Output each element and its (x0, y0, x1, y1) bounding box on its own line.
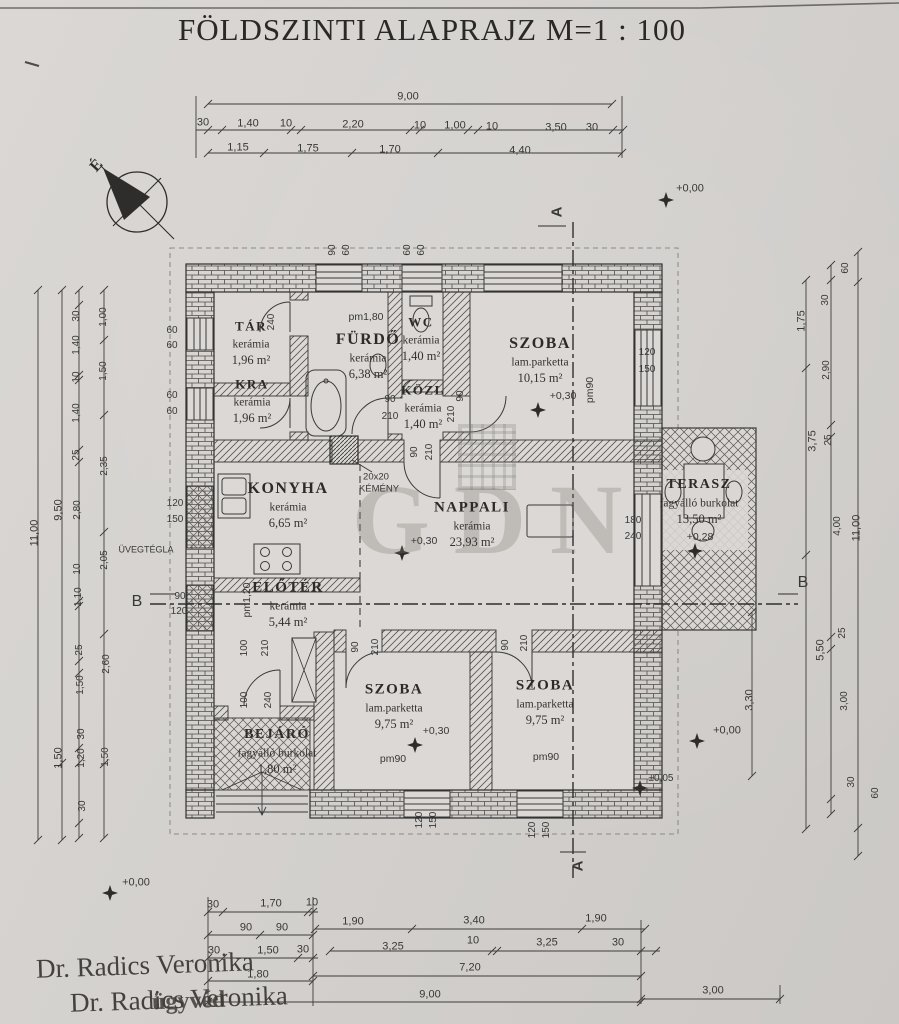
scan-top-edge (0, 3, 899, 8)
scanned-floor-plan-page: GDN FÖLDSZINTI ALAPRAJZ M=1 : 100 É 9,00… (0, 0, 899, 1024)
stamp-overlay: ügyvéd (152, 987, 226, 1017)
north-compass-icon (100, 165, 174, 239)
scan-corner-tick (25, 62, 39, 66)
wardrobe (292, 638, 316, 702)
page-title: FÖLDSZINTI ALAPRAJZ M=1 : 100 (132, 12, 732, 48)
watermark-text: GDN (352, 462, 646, 577)
